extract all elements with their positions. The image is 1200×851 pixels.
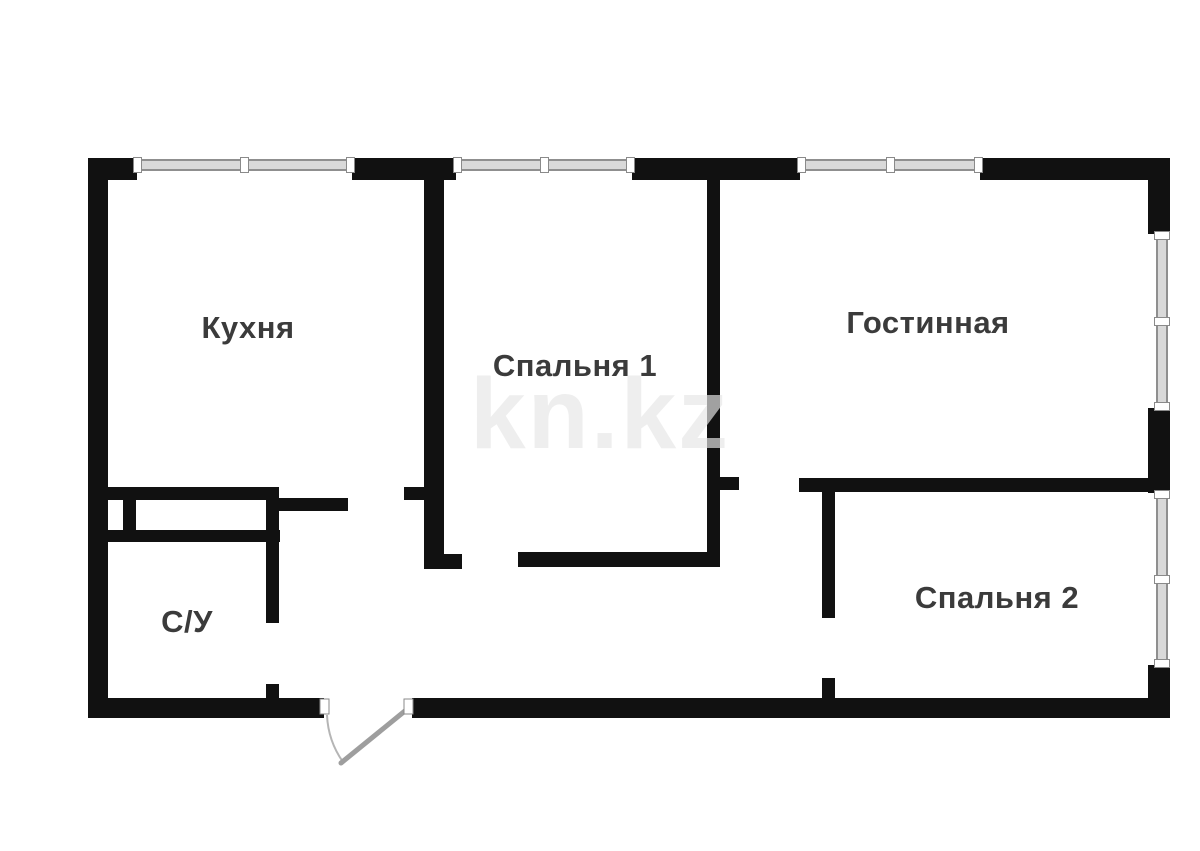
wall-outer-top-segment-4 — [980, 158, 1170, 180]
wall-bedroom2-top — [799, 478, 1170, 492]
wall-outer-bottom-segment-1 — [88, 698, 324, 718]
window-tick — [797, 157, 806, 173]
window-tick — [626, 157, 635, 173]
wall-kitchen-door-stub — [404, 487, 426, 500]
watermark: kn.kz — [470, 362, 730, 467]
wall-kitchen-bottom-left — [90, 487, 277, 500]
window-tick — [453, 157, 462, 173]
room-label-bedroom-2: Спальня 2 — [915, 580, 1079, 616]
wall-bedroom2-left — [822, 492, 835, 618]
window-tick — [1154, 575, 1170, 584]
wall-living-door-stub — [720, 477, 739, 490]
window-tick — [133, 157, 142, 173]
door-jamb-right — [404, 699, 413, 714]
window-tick — [540, 157, 549, 173]
window-tick — [1154, 490, 1170, 499]
window-kitchen — [135, 159, 353, 171]
window-living-room-top — [799, 159, 981, 171]
wall-outer-right-segment-1 — [1148, 158, 1170, 234]
wall-closet-divider — [123, 495, 136, 535]
window-tick — [1154, 317, 1170, 326]
room-label-kitchen: Кухня — [201, 310, 294, 346]
room-label-living-room: Гостинная — [846, 305, 1009, 341]
door-swing-arc — [327, 715, 343, 762]
wall-bathroom-right — [266, 487, 279, 623]
window-living-room-right — [1156, 233, 1168, 409]
wall-outer-top-segment-1 — [88, 158, 137, 180]
window-tick — [974, 157, 983, 173]
floorplan: Кухня Спальня 1 Гостинная Спальня 2 С/У … — [0, 0, 1200, 851]
window-tick — [1154, 402, 1170, 411]
window-tick — [886, 157, 895, 173]
door-jamb-left — [320, 699, 329, 714]
window-tick — [346, 157, 355, 173]
wall-kitchen-bedroom1-divider — [424, 158, 444, 569]
window-tick — [1154, 659, 1170, 668]
wall-closet-lower — [90, 530, 280, 542]
entrance-door — [300, 690, 460, 800]
room-label-bathroom: С/У — [161, 604, 213, 640]
door-leaf — [341, 706, 411, 763]
wall-bedroom2-door-stub — [822, 678, 835, 703]
wall-bedroom1-bottom — [518, 552, 720, 567]
window-tick — [240, 157, 249, 173]
wall-kitchen-divider-foot — [424, 554, 462, 569]
window-bedroom-1 — [455, 159, 633, 171]
window-bedroom-2 — [1156, 492, 1168, 666]
wall-bathroom-door-stub — [266, 684, 279, 704]
wall-outer-bottom-segment-2 — [412, 698, 1170, 718]
wall-outer-left — [88, 158, 108, 718]
window-tick — [1154, 231, 1170, 240]
